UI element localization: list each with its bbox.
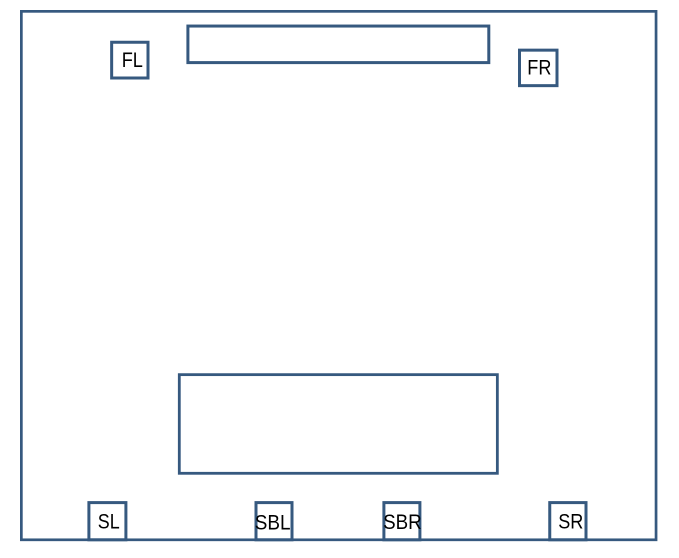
- svg-text:SBR: SBR: [383, 510, 422, 534]
- svg-text:FR: FR: [527, 56, 551, 80]
- svg-text:SBL: SBL: [255, 510, 291, 534]
- svg-text:SR: SR: [558, 510, 583, 534]
- svg-text:FL: FL: [122, 48, 143, 72]
- svg-text:SL: SL: [98, 510, 120, 534]
